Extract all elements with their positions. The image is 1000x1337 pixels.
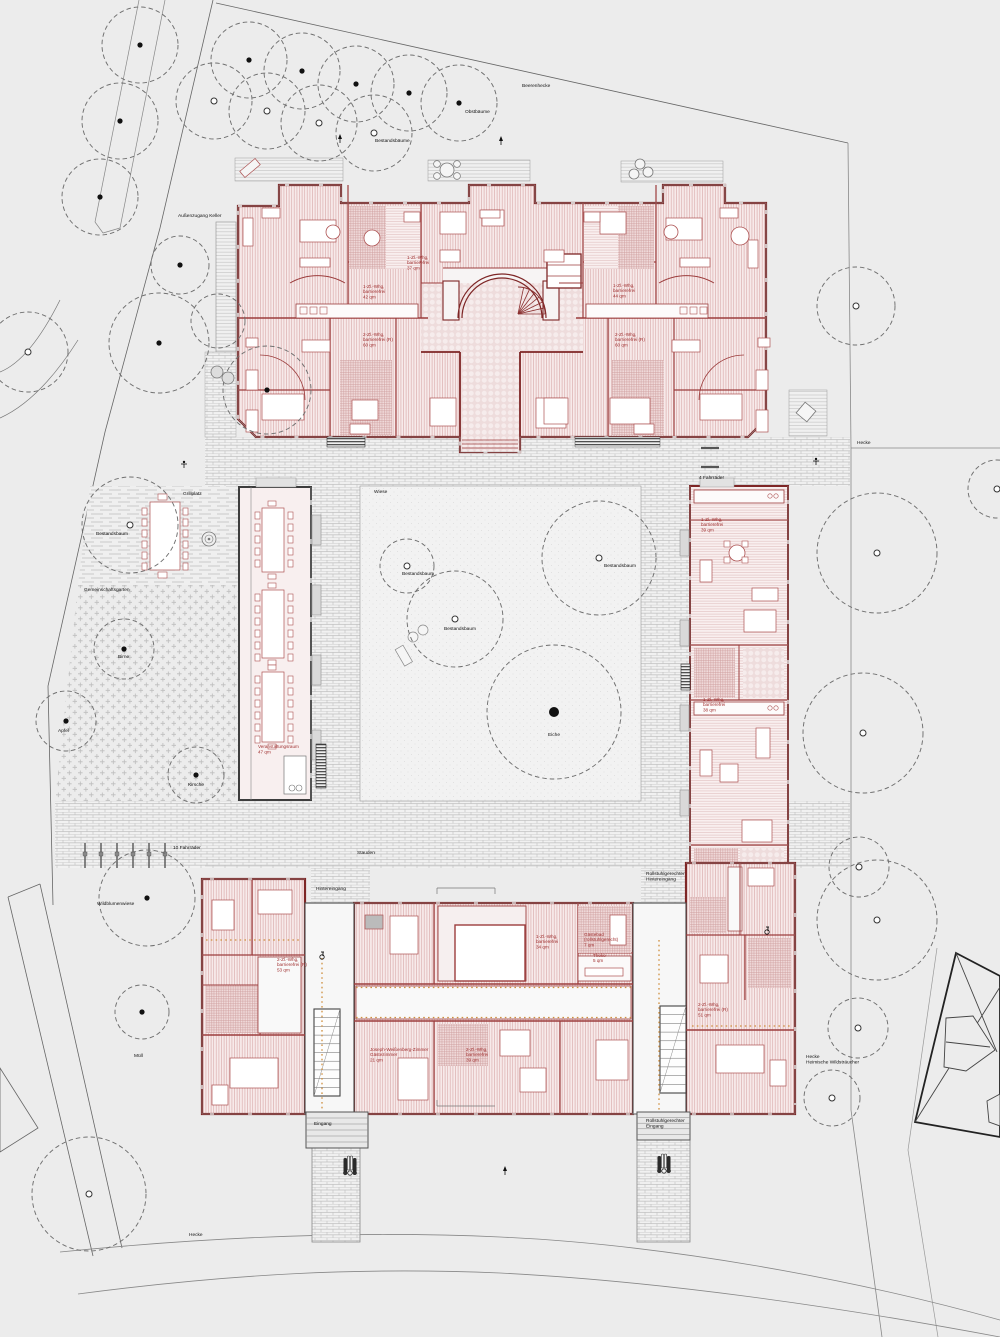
svg-text:Rollstuhlgerechter: Rollstuhlgerechter <box>646 1118 685 1124</box>
svg-text:Birne: Birne <box>118 654 130 660</box>
svg-text:Stauden: Stauden <box>357 850 375 856</box>
svg-text:Bestandsbäume: Bestandsbäume <box>375 138 410 144</box>
svg-text:21 qm: 21 qm <box>370 1057 383 1062</box>
svg-text:Hintereingang: Hintereingang <box>316 886 346 892</box>
svg-text:Grillplatz: Grillplatz <box>183 491 202 497</box>
svg-text:Wildblumenwiese: Wildblumenwiese <box>97 901 135 907</box>
svg-text:Gemeinschaftsgarten: Gemeinschaftsgarten <box>84 587 130 593</box>
svg-text:10 Fahrräder: 10 Fahrräder <box>173 845 201 851</box>
svg-text:Apfel: Apfel <box>58 728 69 734</box>
svg-text:37 qm: 37 qm <box>407 265 420 270</box>
svg-text:5 qm: 5 qm <box>593 958 603 963</box>
svg-text:Wiese: Wiese <box>374 489 388 495</box>
svg-text:47 qm: 47 qm <box>258 750 271 755</box>
svg-text:Obstbäume: Obstbäume <box>465 109 490 115</box>
svg-text:Bestandsbaum: Bestandsbaum <box>402 571 434 577</box>
svg-text:7 qm: 7 qm <box>584 942 594 947</box>
svg-text:53 qm: 53 qm <box>277 967 290 972</box>
svg-text:Hecke: Hecke <box>806 1054 820 1060</box>
svg-text:Bestandsbaum: Bestandsbaum <box>444 626 476 632</box>
svg-text:42 qm: 42 qm <box>363 294 376 299</box>
svg-text:44 qm: 44 qm <box>613 293 626 298</box>
svg-text:Müll: Müll <box>134 1053 143 1059</box>
svg-text:Bestandsbaum: Bestandsbaum <box>604 563 636 569</box>
svg-text:39 qm: 39 qm <box>701 527 714 532</box>
svg-text:Veranstaltungsraum: Veranstaltungsraum <box>258 744 299 749</box>
svg-text:Eiche: Eiche <box>548 732 560 738</box>
svg-text:Rollstuhlgerechter: Rollstuhlgerechter <box>646 871 685 877</box>
svg-text:4 Fahrräder: 4 Fahrräder <box>699 475 724 481</box>
svg-text:Eingang: Eingang <box>314 1121 332 1127</box>
svg-text:Heimische Wildsträucher: Heimische Wildsträucher <box>806 1060 859 1066</box>
svg-text:60 qm: 60 qm <box>615 342 628 347</box>
svg-text:Eingang: Eingang <box>646 1124 664 1130</box>
svg-text:Hintereingang: Hintereingang <box>646 877 676 883</box>
svg-text:34 qm: 34 qm <box>536 944 549 949</box>
svg-text:Außenzugang Keller: Außenzugang Keller <box>178 213 222 219</box>
svg-text:38 qm: 38 qm <box>703 707 716 712</box>
svg-text:Beerenhecke: Beerenhecke <box>522 83 551 89</box>
svg-text:39 qm: 39 qm <box>466 1057 479 1062</box>
svg-text:51 qm: 51 qm <box>698 1012 711 1017</box>
svg-text:Bestandsbaum: Bestandsbaum <box>96 531 128 537</box>
svg-text:Hecke: Hecke <box>857 440 871 446</box>
svg-text:Kirsche: Kirsche <box>188 782 204 788</box>
svg-text:60 qm: 60 qm <box>363 342 376 347</box>
svg-text:Hecke: Hecke <box>189 1232 203 1238</box>
